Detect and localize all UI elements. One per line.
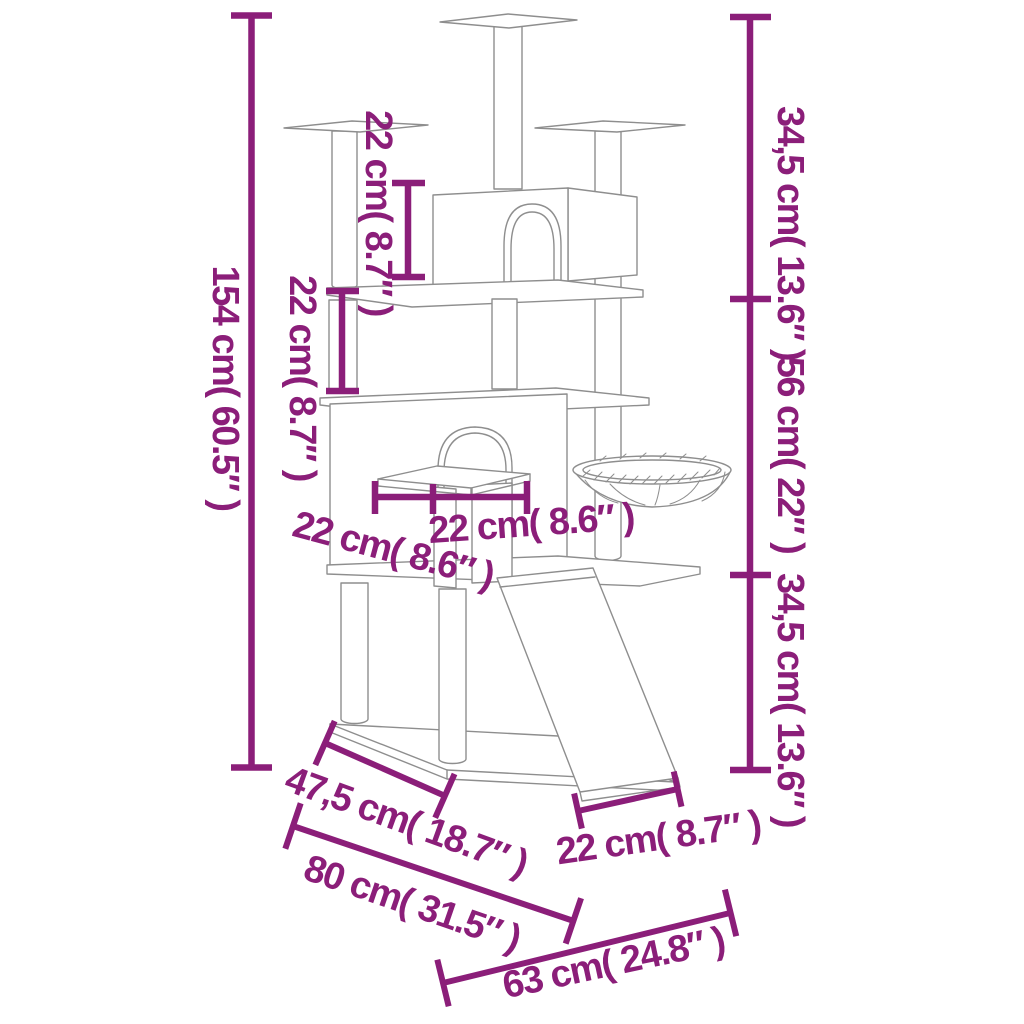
- ramp: [497, 568, 680, 801]
- top-platform: [440, 14, 577, 28]
- dim-mid-post-height-label: 22 cm( 8.7″ ): [281, 275, 323, 481]
- diagram-canvas: 154 cm( 60.5″ ) 22 cm( 8.7″ ) 22 cm( 8.7…: [0, 0, 1024, 1024]
- upper-left-post: [332, 131, 357, 289]
- dimension-diagram: 154 cm( 60.5″ ) 22 cm( 8.7″ ) 22 cm( 8.7…: [0, 0, 1024, 1024]
- bottom-left-post: [341, 583, 368, 724]
- left-platform: [284, 121, 428, 132]
- dim-upper-section-label: 34,5 cm( 13.6″ ): [769, 106, 811, 360]
- top-post: [494, 24, 522, 189]
- dim-right-sections: 34,5 cm( 13.6″ ) 56 cm( 22″ ) 34,5 cm( 1…: [730, 17, 811, 827]
- bottom-center-post: [439, 589, 466, 764]
- dim-footprint-depth-label: 63 cm( 24.8″ ): [499, 919, 728, 1007]
- right-platform: [535, 121, 685, 132]
- upper-house-front: [433, 188, 568, 289]
- ramp-board: [497, 568, 678, 792]
- cat-tree-drawing: [284, 14, 731, 801]
- upper-house-side: [568, 188, 637, 281]
- dim-total-height: 154 cm( 60.5″ ): [204, 16, 272, 768]
- dim-top-post-height-label: 22 cm( 8.7″ ): [357, 110, 399, 316]
- mid-center-post: [492, 299, 517, 389]
- dim-ramp-width-label: 22 cm( 8.7″ ): [554, 803, 764, 873]
- dim-total-height-label: 154 cm( 60.5″ ): [204, 266, 246, 511]
- dim-lower-section-label: 34,5 cm( 13.6″ ): [769, 573, 811, 827]
- dim-middle-section-label: 56 cm( 22″ ): [769, 357, 811, 554]
